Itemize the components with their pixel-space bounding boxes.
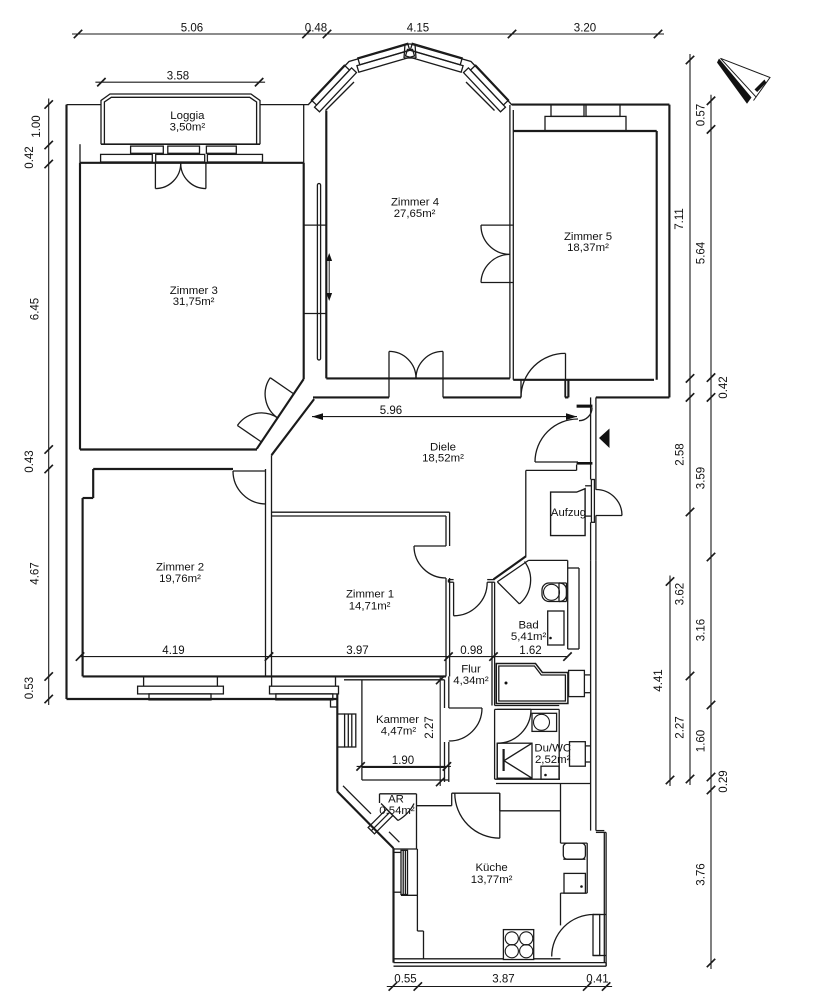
svg-text:0.41: 0.41 [586,974,608,986]
svg-text:Zimmer 3: Zimmer 3 [170,285,218,297]
svg-text:13,77m²: 13,77m² [471,874,513,886]
svg-text:3.76: 3.76 [696,863,708,885]
svg-text:0.48: 0.48 [305,23,327,35]
svg-text:0.42: 0.42 [718,376,730,398]
svg-text:2.27: 2.27 [675,716,687,738]
svg-text:5.96: 5.96 [380,405,402,417]
svg-text:3.87: 3.87 [492,974,514,986]
svg-text:2,52m²: 2,52m² [535,754,571,766]
svg-text:3,50m²: 3,50m² [170,121,206,133]
svg-text:Küche: Küche [475,862,507,874]
svg-text:Bad: Bad [518,620,538,632]
svg-text:4.41: 4.41 [653,669,665,691]
svg-text:0.42: 0.42 [24,146,36,168]
svg-text:3.59: 3.59 [696,467,708,489]
svg-text:0.98: 0.98 [460,645,482,657]
svg-text:19,76m²: 19,76m² [159,573,201,585]
svg-text:1.60: 1.60 [696,730,708,752]
svg-text:1.90: 1.90 [392,755,414,767]
svg-text:4.19: 4.19 [162,645,184,657]
svg-text:0.43: 0.43 [24,450,36,472]
svg-text:0.55: 0.55 [394,974,416,986]
svg-text:Zimmer 1: Zimmer 1 [346,589,394,601]
svg-text:6.45: 6.45 [30,298,42,320]
svg-text:7.11: 7.11 [674,208,686,230]
svg-text:Kammer: Kammer [376,714,419,726]
svg-text:Flur: Flur [461,664,481,676]
svg-text:5.06: 5.06 [181,23,203,35]
svg-text:18,37m²: 18,37m² [567,242,609,254]
svg-text:Diele: Diele [430,441,456,453]
svg-text:Aufzug: Aufzug [551,507,586,519]
svg-text:3.58: 3.58 [167,71,189,83]
svg-text:4,47m²: 4,47m² [381,726,417,738]
svg-text:Zimmer 2: Zimmer 2 [156,562,204,574]
svg-text:0.53: 0.53 [24,677,36,699]
svg-text:4,34m²: 4,34m² [453,675,489,687]
svg-text:27,65m²: 27,65m² [394,208,436,220]
svg-text:4.67: 4.67 [30,562,42,584]
svg-text:5,41m²: 5,41m² [511,631,547,643]
svg-text:18,52m²: 18,52m² [422,453,464,465]
svg-text:AR: AR [388,794,404,806]
svg-text:31,75m²: 31,75m² [173,296,215,308]
svg-text:3.16: 3.16 [696,619,708,641]
svg-text:3.20: 3.20 [574,23,596,35]
svg-text:3.62: 3.62 [675,583,687,605]
svg-text:Zimmer 4: Zimmer 4 [391,196,439,208]
svg-text:Zimmer 5: Zimmer 5 [564,231,612,243]
svg-text:0.57: 0.57 [696,104,708,126]
svg-text:2.27: 2.27 [424,716,436,738]
svg-text:5.64: 5.64 [696,241,708,264]
svg-text:2.58: 2.58 [675,443,687,465]
svg-text:4.15: 4.15 [407,23,429,35]
svg-text:3.97: 3.97 [346,645,368,657]
svg-text:14,71m²: 14,71m² [349,600,391,612]
svg-text:1.00: 1.00 [31,115,43,137]
svg-text:Du/WC: Du/WC [534,743,571,755]
svg-text:1.62: 1.62 [519,645,541,657]
svg-text:Loggia: Loggia [170,110,205,122]
svg-text:0.29: 0.29 [718,770,730,792]
